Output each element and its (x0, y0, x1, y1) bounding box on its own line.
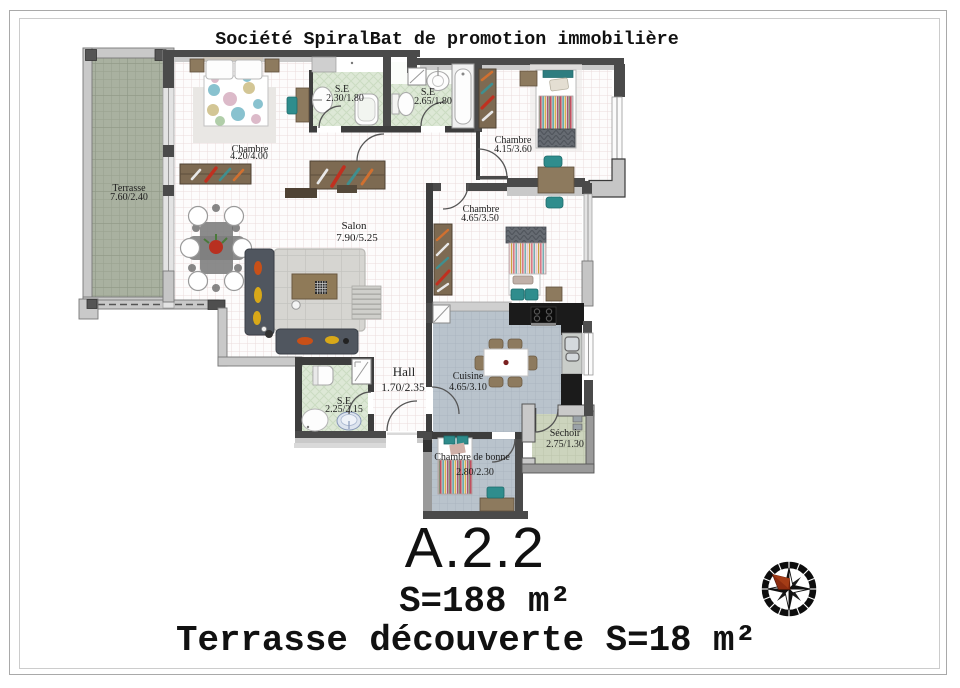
svg-text:2.80/2.30: 2.80/2.30 (456, 467, 494, 478)
svg-text:Chambre de bonne: Chambre de bonne (434, 452, 510, 463)
svg-text:Salon: Salon (341, 220, 367, 232)
svg-text:Terrasse découverte S=18 m²: Terrasse découverte S=18 m² (176, 620, 756, 661)
svg-text:4.15/3.60: 4.15/3.60 (494, 144, 532, 155)
svg-text:1.70/2.35: 1.70/2.35 (381, 382, 425, 394)
svg-text:2.75/1.30: 2.75/1.30 (546, 439, 584, 450)
svg-text:S=188 m²: S=188 m² (399, 581, 571, 622)
svg-text:Société SpiralBat de promotion: Société SpiralBat de promotion immobiliè… (215, 29, 679, 50)
svg-text:7.60/2.40: 7.60/2.40 (110, 192, 148, 203)
svg-text:7.90/5.25: 7.90/5.25 (336, 232, 378, 244)
svg-text:2.25/2.15: 2.25/2.15 (325, 404, 363, 415)
svg-text:A.2.2: A.2.2 (405, 516, 546, 580)
svg-text:4.20/4.00: 4.20/4.00 (230, 151, 268, 162)
svg-text:Séchoir: Séchoir (550, 428, 581, 439)
svg-text:4.65/3.50: 4.65/3.50 (461, 213, 499, 224)
svg-text:2.65/1.80: 2.65/1.80 (414, 96, 452, 107)
svg-text:2.30/1.80: 2.30/1.80 (326, 93, 364, 104)
svg-text:Hall: Hall (393, 364, 416, 379)
svg-text:4.65/3.10: 4.65/3.10 (449, 382, 487, 393)
svg-text:Cuisine: Cuisine (453, 371, 484, 382)
